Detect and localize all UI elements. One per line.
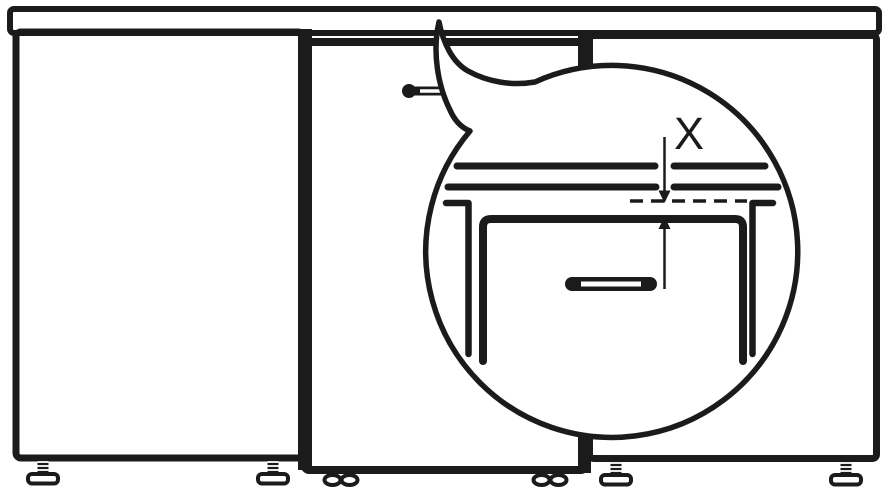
left-cabinet — [16, 32, 303, 458]
adjustable-screw-foot — [258, 458, 288, 484]
gap-dimension-label: X — [674, 108, 704, 159]
adjustable-screw-foot — [831, 459, 861, 485]
diagram-canvas: X — [0, 0, 894, 498]
adjustable-screw-foot — [28, 458, 58, 484]
oval-foot — [534, 475, 567, 485]
adjustable-screw-foot — [601, 459, 631, 485]
assembly-diagram: X — [0, 0, 894, 498]
oval-foot — [325, 475, 358, 485]
